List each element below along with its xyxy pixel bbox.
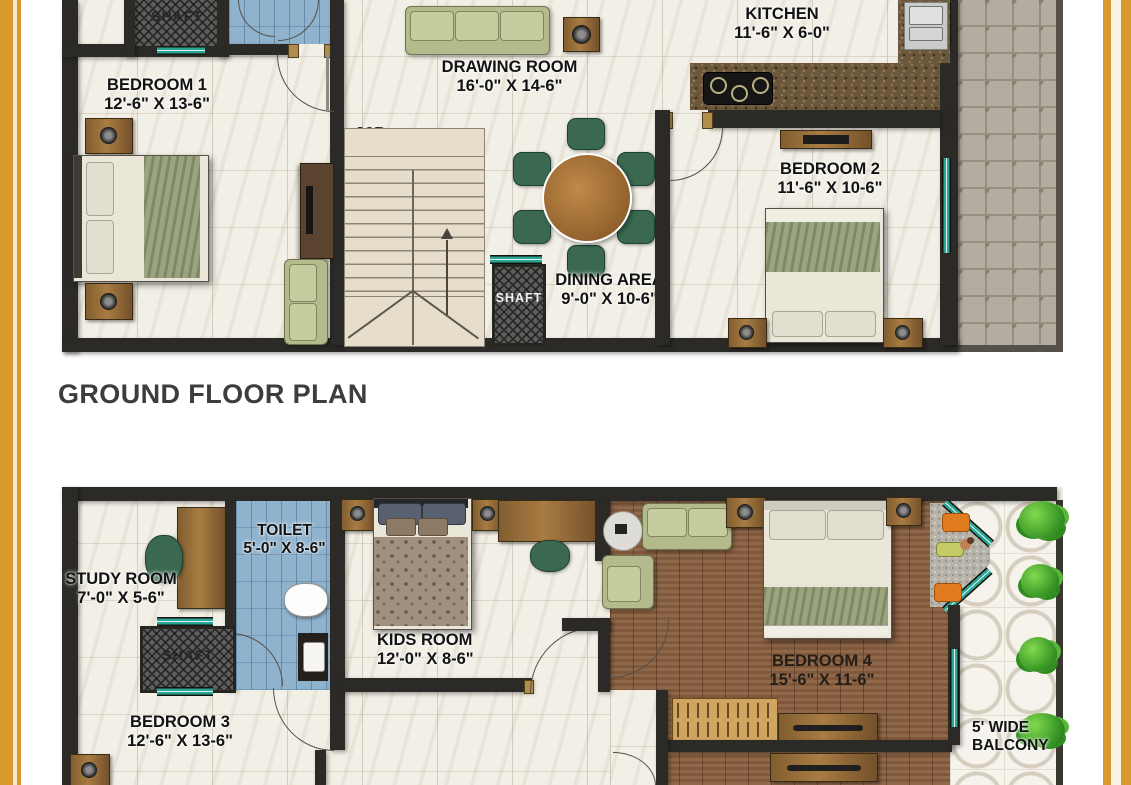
hanger-rail bbox=[677, 703, 773, 718]
loveseat-bedroom4 bbox=[642, 503, 732, 550]
room-size: 12'-6" X 13-6" bbox=[82, 95, 232, 114]
bed-pillow bbox=[772, 311, 823, 337]
sofa-cushion bbox=[647, 508, 687, 537]
shaft-label: SHAFT bbox=[495, 291, 543, 305]
lamp-icon bbox=[739, 325, 754, 340]
tv-unit bbox=[300, 163, 334, 259]
bed-headboard bbox=[74, 156, 82, 278]
bed-bedroom1 bbox=[73, 155, 209, 282]
lamp-icon bbox=[480, 506, 495, 521]
room-label-kitchen: KITCHEN 11'-6" X 6-0" bbox=[722, 5, 842, 44]
bed-pillow bbox=[827, 510, 884, 540]
lamp-icon bbox=[350, 506, 365, 521]
bed-pillow bbox=[386, 518, 416, 536]
loveseat-bedroom1 bbox=[284, 259, 328, 345]
sofa-cushion bbox=[455, 11, 499, 41]
room-label-study: STUDY ROOM 7'-0" X 5-6" bbox=[62, 570, 180, 609]
plant-icon bbox=[1019, 637, 1057, 672]
paving-edge-right bbox=[1056, 0, 1063, 352]
drawer-chest bbox=[778, 713, 878, 743]
round-table bbox=[603, 511, 643, 551]
drawer-chest bbox=[770, 753, 878, 782]
kids-desk bbox=[498, 500, 599, 542]
bed-footboard bbox=[766, 209, 880, 223]
shaft-label: SHAFT bbox=[143, 647, 233, 663]
page-border-left bbox=[0, 0, 21, 785]
wall-hall-vertical bbox=[598, 618, 610, 692]
room-size: 16'-0" X 14-6" bbox=[437, 77, 582, 96]
side-table bbox=[563, 17, 600, 52]
bed-pillow bbox=[86, 220, 114, 274]
bed-bedroom2 bbox=[765, 208, 884, 343]
sofa-drawing-room bbox=[405, 6, 550, 55]
tv-icon bbox=[803, 135, 849, 144]
room-label-balcony: 5' WIDE BALCONY bbox=[960, 719, 1067, 756]
room-size: 5'-0" X 8-6" bbox=[242, 540, 327, 558]
window-shaft bbox=[157, 617, 213, 626]
room-name: STUDY ROOM bbox=[65, 570, 177, 588]
room-label-bedroom2: BEDROOM 2 11'-6" X 10-6" bbox=[760, 160, 900, 199]
tv-icon bbox=[306, 186, 313, 234]
room-label-kids: KIDS ROOM 12'-0" X 8-6" bbox=[377, 631, 472, 670]
bed-pillow bbox=[418, 518, 448, 536]
nightstand bbox=[728, 318, 767, 348]
cushion-orange bbox=[942, 513, 970, 532]
room-size: 11'-6" X 6-0" bbox=[722, 24, 842, 43]
shaft-stairs: SHAFT bbox=[492, 264, 546, 346]
room-name: KIDS ROOM bbox=[377, 631, 472, 649]
kids-chair bbox=[530, 540, 570, 572]
dresser-bedroom2 bbox=[780, 130, 872, 149]
bedroom2-door-arc bbox=[670, 128, 723, 181]
stairs-divider bbox=[412, 170, 414, 345]
floor-plan-page: SHAFT BEDROOM 1 12'-6" X 13-6" bbox=[0, 0, 1131, 785]
toilet-wc bbox=[303, 642, 325, 672]
toilet-vanity bbox=[298, 633, 328, 681]
lamp-icon bbox=[572, 25, 591, 44]
wall-kitchen-bottom bbox=[708, 110, 940, 128]
sink-basin bbox=[909, 6, 943, 25]
window-shaft bbox=[157, 46, 205, 55]
dining-chair bbox=[567, 118, 605, 150]
nightstand bbox=[341, 499, 375, 531]
door-jamb bbox=[702, 112, 713, 129]
room-size: 15'-6" X 11-6" bbox=[757, 671, 887, 690]
stairs-steps bbox=[344, 156, 485, 298]
nightstand bbox=[85, 283, 133, 320]
room-label-toilet: TOILET 5'-0" X 8-6" bbox=[242, 522, 327, 559]
bed-blanket bbox=[374, 537, 468, 626]
room-name: BEDROOM 2 bbox=[780, 160, 880, 178]
window-shaft bbox=[157, 687, 213, 696]
burner-icon bbox=[731, 85, 748, 102]
sofa-cushion bbox=[688, 508, 728, 537]
cushion-orange bbox=[934, 583, 962, 602]
dining-table bbox=[542, 153, 632, 243]
wall-bath-bottom bbox=[226, 44, 288, 55]
bed-headboard bbox=[764, 501, 888, 510]
room-name: KITCHEN bbox=[745, 5, 818, 23]
room-name: BEDROOM 4 bbox=[772, 652, 872, 670]
lamp-icon bbox=[100, 293, 117, 310]
room-label-bedroom3: BEDROOM 3 12'-6" X 13-6" bbox=[120, 713, 240, 752]
nightstand bbox=[883, 318, 923, 348]
bed-blanket bbox=[766, 222, 880, 272]
window-shaft-stairs bbox=[490, 255, 542, 264]
shaft-label: SHAFT bbox=[135, 8, 219, 24]
person-hair bbox=[967, 537, 974, 544]
lamp-icon bbox=[737, 504, 753, 520]
wall-shaft-left bbox=[124, 0, 135, 57]
wall-bedroom2-left bbox=[655, 110, 670, 345]
paving-edge-bottom bbox=[958, 345, 1063, 352]
bed-footboard bbox=[764, 625, 888, 636]
page-border-right bbox=[1103, 0, 1131, 785]
bed-pillow bbox=[769, 510, 826, 540]
kitchen-sink bbox=[904, 2, 948, 50]
wash-basin bbox=[284, 583, 328, 617]
room-size: 12'-0" X 8-6" bbox=[377, 650, 472, 669]
room-name: DINING AREA bbox=[555, 271, 663, 289]
bedroom1-door-leaf bbox=[326, 55, 329, 111]
lamp-icon bbox=[100, 127, 117, 144]
room-size: 7'-0" X 5-6" bbox=[62, 589, 180, 608]
sofa-cushion bbox=[410, 11, 454, 41]
nightstand bbox=[886, 497, 922, 526]
stairs-arrow-line bbox=[446, 240, 448, 315]
wardrobe bbox=[672, 698, 778, 743]
room-label-bedroom1: BEDROOM 1 12'-6" X 13-6" bbox=[82, 76, 232, 115]
ground-floor-plan: SHAFT BEDROOM 1 12'-6" X 13-6" bbox=[62, 0, 1063, 352]
stairs-lower bbox=[344, 296, 485, 347]
sofa-cushion bbox=[607, 566, 641, 602]
lamp-icon bbox=[896, 503, 911, 518]
wall-left bbox=[62, 487, 78, 785]
room-name-line2: BALCONY bbox=[972, 737, 1067, 755]
nightstand bbox=[726, 497, 766, 528]
bed-blanket bbox=[764, 587, 888, 625]
bed-blanket bbox=[144, 156, 200, 278]
room-label-drawing-room: DRAWING ROOM 16'-0" X 14-6" bbox=[437, 58, 582, 97]
room-size: 12'-6" X 13-6" bbox=[120, 732, 240, 751]
side-paving bbox=[958, 0, 1063, 345]
wall-hall-bottom bbox=[656, 690, 668, 785]
sofa-cushion bbox=[289, 303, 317, 341]
room-label-bedroom4: BEDROOM 4 15'-6" X 11-6" bbox=[757, 652, 887, 691]
sink-basin bbox=[909, 27, 943, 41]
hanger-rail bbox=[677, 722, 773, 737]
sofa-cushion bbox=[289, 264, 317, 302]
bed-bedroom4 bbox=[763, 500, 892, 639]
burner-icon bbox=[710, 77, 727, 94]
room-size: 9'-0" X 10-6" bbox=[552, 290, 667, 309]
nightstand bbox=[70, 754, 110, 785]
upper-floor-plan: STUDY ROOM 7'-0" X 5-6" TOILET 5'-0" X 8… bbox=[62, 487, 1063, 785]
room-name: TOILET bbox=[257, 522, 312, 539]
drawer-handle bbox=[787, 765, 861, 771]
room-size: 11'-6" X 10-6" bbox=[760, 179, 900, 198]
sofa-cushion bbox=[500, 11, 544, 41]
nightstand bbox=[85, 118, 133, 154]
wall-bedroom3-stub bbox=[315, 750, 326, 785]
bedroom3-door-arc bbox=[273, 688, 334, 751]
armchair-bedroom4 bbox=[602, 555, 654, 609]
room-name: BEDROOM 3 bbox=[130, 713, 230, 731]
wall-bedroom4-bottom bbox=[668, 740, 952, 752]
kids-door-arc bbox=[530, 627, 596, 693]
lamp-icon bbox=[81, 762, 97, 778]
plant-icon bbox=[1019, 501, 1065, 539]
burner-icon bbox=[752, 77, 769, 94]
bed-pillow bbox=[825, 311, 876, 337]
plant-icon bbox=[1021, 564, 1059, 598]
table-item bbox=[615, 524, 627, 534]
ground-floor-plan-title: GROUND FLOOR PLAN bbox=[58, 379, 368, 410]
room-name: 5' WIDE bbox=[972, 719, 1029, 736]
window-bedroom2-right bbox=[942, 158, 951, 253]
gas-stove bbox=[703, 72, 773, 105]
bed-kids-room bbox=[373, 498, 472, 630]
room-name: DRAWING ROOM bbox=[442, 58, 578, 76]
shaft-upper: SHAFT bbox=[140, 626, 236, 693]
window-bedroom4-right bbox=[950, 649, 959, 727]
room-name: BEDROOM 1 bbox=[107, 76, 207, 94]
lamp-icon bbox=[895, 325, 910, 340]
study-desk bbox=[177, 507, 227, 609]
room-label-dining: DINING AREA 9'-0" X 10-6" bbox=[552, 271, 667, 310]
drawer-handle bbox=[793, 725, 863, 731]
bed-pillow bbox=[86, 162, 114, 216]
stairs-arrow-head bbox=[441, 228, 453, 239]
shaft-top-left: SHAFT bbox=[135, 0, 219, 46]
wall-kids-bottom bbox=[342, 678, 532, 692]
